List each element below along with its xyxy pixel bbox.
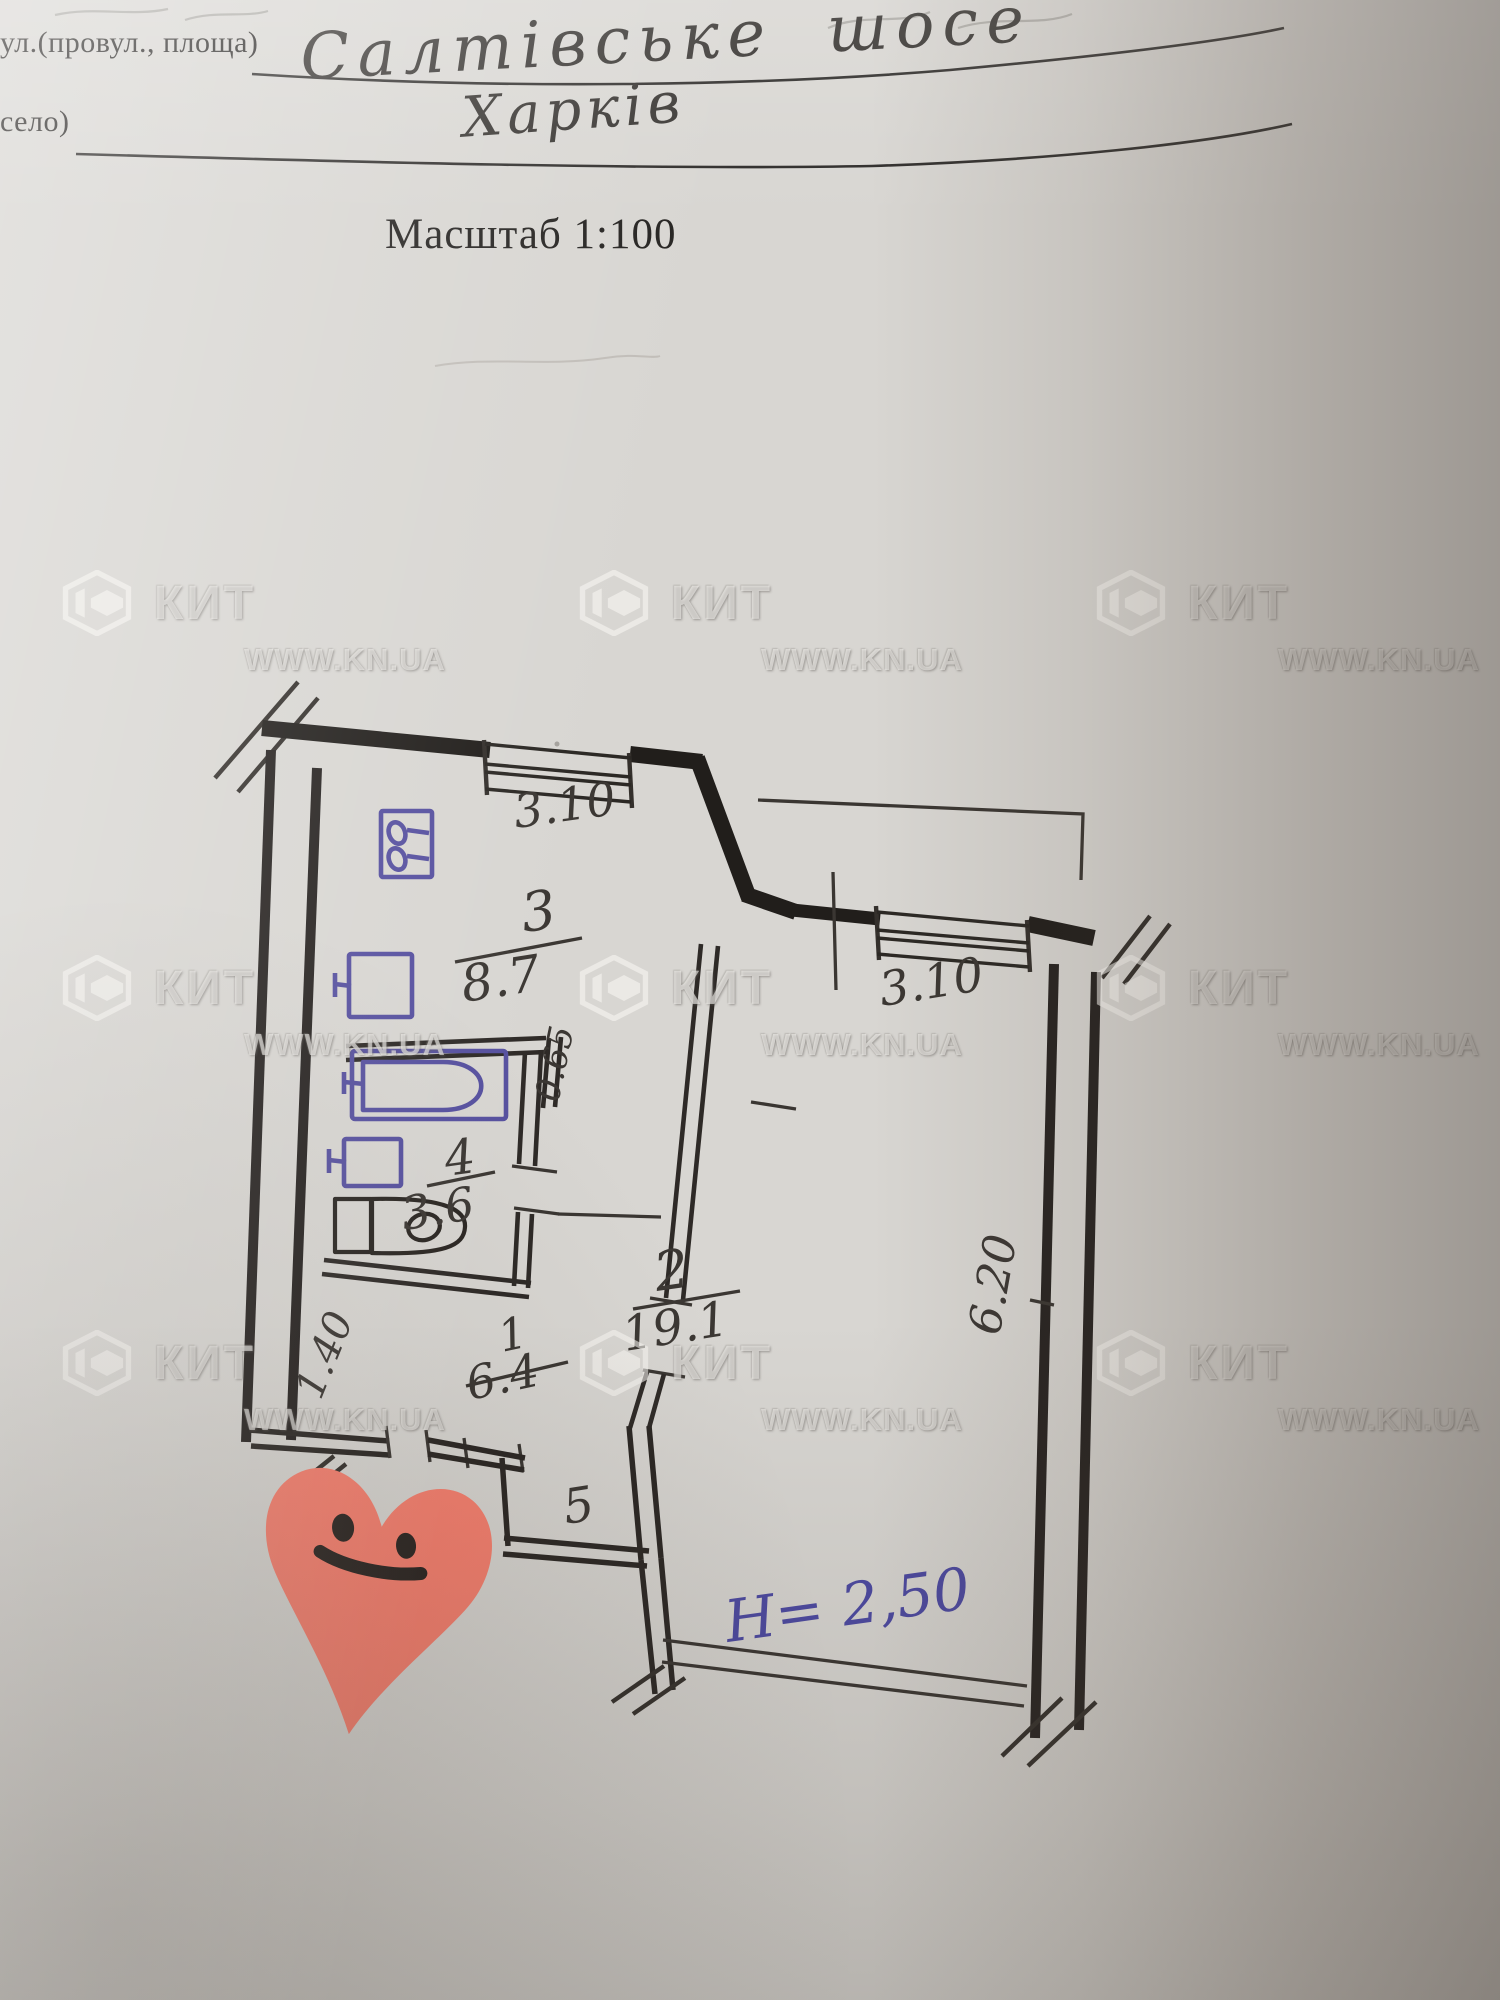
photographed-floorplan-document: 3.10 3.10 6.20 0.65 1.40 H= 2,50 3 8.7 4… [0,0,1500,2000]
room-label-kitchen: 3 8.7 [455,878,582,1014]
dim-kitchen-window: 3.10 [510,771,619,839]
wall-break-north-east [1102,916,1170,984]
bathtub-icon [344,1051,506,1119]
room-label-closet: 5 [559,1476,598,1536]
dim-living-room-depth: 6.20 [958,1230,1028,1338]
dim-kitchen-niche: 0.65 [528,1023,583,1105]
ceiling-height-note: H= 2,50 [719,1554,974,1656]
svg-text:8.7: 8.7 [457,944,545,1014]
scale-label: Масштаб 1:100 [385,210,677,259]
room-label-hall: 1 6.4 [461,1307,568,1411]
bathroom-door-leaf [558,1214,661,1217]
svg-text:3.6: 3.6 [397,1176,478,1241]
heart-sticker [235,1460,501,1752]
svg-text:19.1: 19.1 [618,1291,732,1363]
svg-text:6.4: 6.4 [461,1343,544,1411]
stove-icon [381,811,432,877]
kitchen-sink-icon [335,954,412,1017]
washbasin-icon [329,1139,401,1186]
settlement-field-label: село) [0,105,69,139]
room-label-living-room: 2 19.1 [618,1237,740,1363]
svg-text:3: 3 [517,878,560,945]
street-field-label: ул.(провул., площа) [0,26,258,60]
room-label-bathroom: 4 3.6 [397,1128,495,1241]
dim-living-room-window: 3.10 [875,947,987,1018]
room-labels: 3 8.7 4 3.6 1 6.4 2 19.1 5 [397,878,740,1536]
floor-plan-drawing: 3.10 3.10 6.20 0.65 1.40 H= 2,50 3 8.7 4… [0,0,1500,2000]
